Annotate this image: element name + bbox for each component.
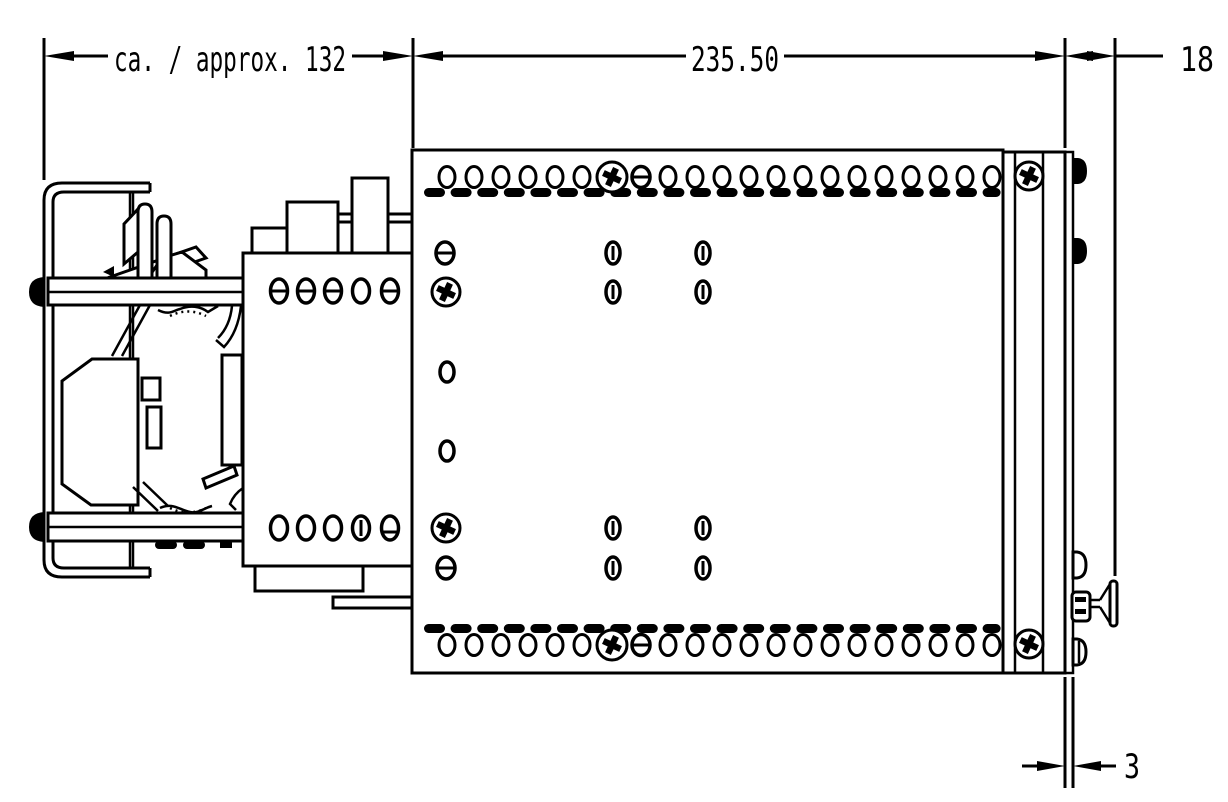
vent-slot: [690, 188, 711, 197]
vent-slot: [823, 188, 844, 197]
main-module: [412, 150, 1003, 673]
vent-hole: [903, 167, 919, 188]
arrowhead: [1073, 761, 1101, 771]
vent-hole: [520, 167, 536, 188]
terminal-oval: [382, 516, 399, 540]
lever-base: [1072, 592, 1090, 621]
vent-hole: [439, 167, 455, 188]
vent-hole: [687, 635, 703, 656]
dim-label-body-width: 235.50: [691, 40, 779, 80]
top-step-3: [352, 178, 388, 253]
side-screw-3: [1073, 552, 1086, 578]
locking-lever: [1072, 581, 1117, 626]
slider-bar: [222, 355, 242, 465]
vent-hole: [957, 635, 973, 656]
vent-slot: [850, 624, 871, 633]
vent-hole: [466, 635, 482, 656]
contact-pin-2: [157, 216, 171, 280]
rod-head-upper: [29, 277, 44, 307]
pilot-hole: [440, 362, 454, 382]
vent-hole: [741, 167, 757, 188]
vent-hole: [520, 635, 536, 656]
rail-notch-lower: [147, 407, 161, 448]
vent-slot: [451, 188, 472, 197]
side-screw-2: [1073, 238, 1087, 264]
vent-slot: [717, 188, 738, 197]
foot-pad-2: [183, 541, 205, 549]
lever-slot-1: [1075, 597, 1086, 602]
side-screw-1: [1073, 158, 1087, 184]
drawing-canvas: ca. / approx. 132 235.50 18 3: [0, 0, 1228, 802]
vent-hole: [849, 167, 865, 188]
dim-label-left-width: ca. / approx. 132: [114, 40, 346, 80]
terminal-oval: [298, 516, 315, 540]
vent-slot: [983, 624, 1001, 633]
dim-label-right-depth: 18: [1180, 40, 1214, 80]
vent-slot: [903, 624, 924, 633]
vent-hole: [660, 167, 676, 188]
arrowhead: [383, 51, 413, 61]
vent-hole: [741, 635, 757, 656]
vent-hole: [984, 167, 1000, 188]
dimension-plate-thickness: 3: [1022, 677, 1140, 788]
vent-hole: [660, 635, 676, 656]
module-outline: [412, 150, 1003, 673]
dim-label-plate-thickness: 3: [1124, 747, 1140, 787]
panel-body: [1003, 152, 1065, 673]
vent-slot: [743, 624, 764, 633]
vent-slot: [477, 188, 498, 197]
vent-slot: [477, 624, 498, 633]
bottom-tray: [255, 566, 363, 591]
vent-slot: [823, 624, 844, 633]
vent-hole: [822, 635, 838, 656]
dimension-left-width: ca. / approx. 132: [44, 38, 413, 180]
vent-slot: [956, 624, 977, 633]
rail-notch-upper: [142, 378, 160, 400]
vent-slot: [637, 188, 658, 197]
terminal-block: [243, 178, 412, 608]
dimension-right-depth: 18: [1065, 38, 1214, 576]
terminal-oval: [271, 516, 288, 540]
vent-hole: [795, 167, 811, 188]
vent-slot: [424, 624, 445, 633]
dimension-body-width: 235.50: [413, 38, 1065, 148]
bottom-tongue: [333, 597, 412, 608]
vent-hole: [930, 635, 946, 656]
vent-slot: [850, 188, 871, 197]
vent-hole: [876, 635, 892, 656]
vent-slot: [770, 624, 791, 633]
vent-hole: [795, 635, 811, 656]
vent-slot: [929, 188, 950, 197]
vent-slot: [557, 624, 578, 633]
vent-slot: [876, 624, 897, 633]
vent-hole: [822, 167, 838, 188]
vent-slot: [557, 188, 578, 197]
vent-slot: [584, 624, 605, 633]
vent-hole: [714, 635, 730, 656]
vent-hole: [849, 635, 865, 656]
vent-hole: [876, 167, 892, 188]
wedge-block: [62, 359, 138, 505]
vent-slot: [690, 624, 711, 633]
arrowhead: [44, 51, 74, 61]
vent-hole: [547, 167, 563, 188]
vent-slot: [796, 624, 817, 633]
vent-hole: [466, 167, 482, 188]
vent-slot: [983, 188, 1001, 197]
vent-hole: [768, 635, 784, 656]
vent-slot: [451, 624, 472, 633]
contact-tip: [103, 266, 114, 277]
vent-hole: [574, 635, 590, 656]
vent-slot: [504, 188, 525, 197]
vent-hole: [768, 167, 784, 188]
vent-slot: [956, 188, 977, 197]
top-step-1: [252, 228, 288, 253]
top-step-2: [287, 202, 338, 253]
lever-handle-bar: [1110, 581, 1117, 626]
vent-hole: [903, 635, 919, 656]
vent-slot: [530, 624, 551, 633]
vent-slot: [743, 188, 764, 197]
vent-slot: [876, 188, 897, 197]
vent-hole: [574, 167, 590, 188]
arrowhead: [1087, 51, 1115, 61]
terminal-oval: [325, 516, 342, 540]
vent-hole: [547, 635, 563, 656]
vent-slot: [530, 188, 551, 197]
vent-slot: [903, 188, 924, 197]
lever-slot-2: [1075, 609, 1086, 614]
foot-pad-1: [155, 541, 177, 549]
vent-slot: [770, 188, 791, 197]
terminal-oval: [353, 279, 370, 303]
vent-hole: [439, 635, 455, 656]
rod-head-lower: [29, 512, 44, 542]
arrowhead: [413, 51, 443, 61]
arrowhead: [1037, 761, 1065, 771]
vent-hole: [984, 635, 1000, 656]
vent-hole: [714, 167, 730, 188]
vent-slot: [796, 188, 817, 197]
vent-slot: [504, 624, 525, 633]
contact-pin-1: [138, 204, 152, 280]
foot-pad-3: [220, 542, 232, 548]
vent-hole: [930, 167, 946, 188]
vent-hole: [493, 167, 509, 188]
vent-hole: [687, 167, 703, 188]
pilot-hole: [440, 441, 454, 461]
vent-slot: [929, 624, 950, 633]
vent-slot: [663, 188, 684, 197]
vent-slot: [717, 624, 738, 633]
vent-slot: [637, 624, 658, 633]
vent-slot: [424, 188, 445, 197]
arrowhead: [1035, 51, 1065, 61]
contact-flag: [124, 209, 138, 264]
vent-hole: [493, 635, 509, 656]
vent-slot: [663, 624, 684, 633]
technical-drawing: ca. / approx. 132 235.50 18 3: [0, 0, 1228, 802]
vent-hole: [957, 167, 973, 188]
lever-stem: [1090, 584, 1110, 623]
